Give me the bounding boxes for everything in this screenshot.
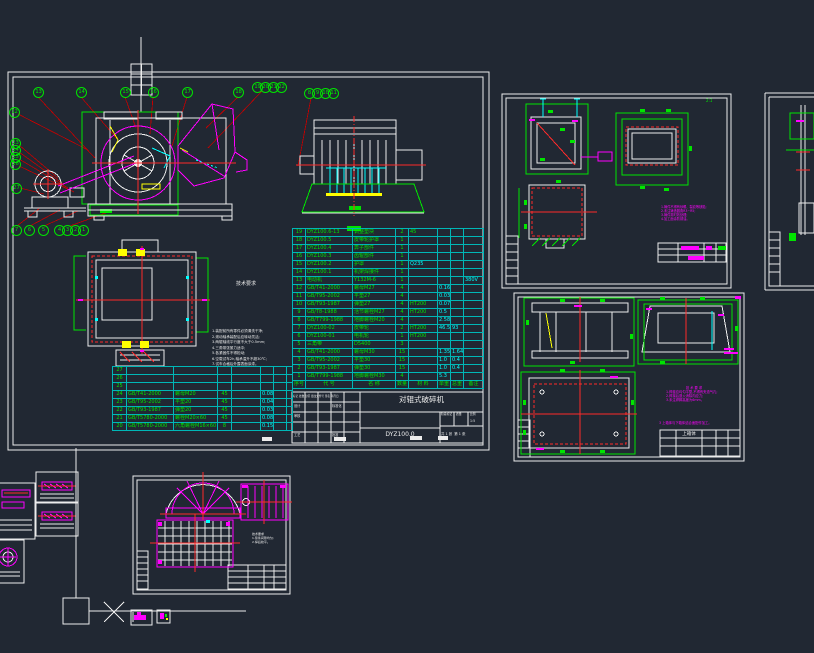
title-block-sheet-count: 共 1 张 第 1 张 [441, 432, 465, 436]
block-preview-icons [131, 610, 170, 625]
sheet-c-notes-lines: 1.焊缝应均匀平整,不得有夹渣气孔;2.焊接后退火消除内应力;3.未注焊脚高度为… [666, 390, 722, 402]
crusher-front-view [24, 104, 247, 220]
balloon-22: 22 [276, 82, 287, 93]
balloon-15: 15 [120, 87, 131, 98]
balloon-18: 18 [233, 87, 244, 98]
title-block-approve-label: 批准 [332, 433, 338, 437]
balloon-17: 17 [182, 87, 193, 98]
title-block-scale-value: 1:5 [470, 419, 475, 423]
balloon-7: 7 [11, 225, 22, 236]
title-block-process-label: 工艺 [294, 433, 300, 437]
sheet-c-title-block-title: 上箱体 [677, 432, 701, 438]
technical-notes-title: 技术要求 [212, 281, 280, 287]
technical-notes: 技术要求 1.装配前所有零件必须清洗干净;2.滚动轴承装配后应转动灵活;3.两辊… [212, 241, 280, 388]
balloon-27: 27 [11, 183, 22, 194]
crusher-plan-view [74, 240, 210, 366]
sheet-c-notes: 技 术 要 求 1.焊缝应均匀平整,不得有夹渣气孔;2.焊接后退火消除内应力;3… [666, 386, 722, 402]
sheet-d-notes: 技术要求1.筛条间隙均匀;2.焊后校平。 [252, 533, 284, 544]
title-block-rev-header: 标记 处数 分区 更改文件号 签名 年月日 [293, 395, 359, 398]
sheet-c-extra-note: 3 上箱体与下箱体结合面配作加工。 [659, 421, 719, 425]
title-block-std-label: 标准化 [332, 404, 342, 408]
balloon-12: 12 [9, 107, 20, 118]
balloon-leader-lines [17, 91, 311, 226]
balloon-14: 14 [76, 87, 87, 98]
sheet-b-corner-mark: 2:1 [706, 98, 712, 103]
title-block-title: 对辊式破碎机 [360, 395, 483, 404]
small-part-sheets [0, 472, 78, 583]
title-block-check-label: 审核 [294, 414, 300, 418]
balloon-5: 5 [38, 225, 49, 236]
technical-notes-lines: 1.装配前所有零件必须清洗干净;2.滚动轴承装配后应转动灵活;3.两辊轴线平行度… [212, 329, 280, 366]
title-block-scale-label: 比例 [470, 413, 476, 416]
sheet-far-right-partial [765, 93, 814, 290]
title-block-design-label: 设计 [294, 404, 300, 408]
autocad-model-space[interactable]: 19DYZ100.6-13调整垫块24518DYZ100.5皮带轮护罩117DY… [0, 0, 814, 653]
sheet-bottom-right [514, 293, 744, 461]
balloon-1: 1 [78, 225, 89, 236]
bom-table-main: 19DYZ100.6-13调整垫块24518DYZ100.5皮带轮护罩117DY… [292, 228, 484, 389]
sheet-top-right [502, 94, 731, 288]
balloon-13: 13 [33, 87, 44, 98]
sheet-b-notes: 1.铸件不得有砂眼、裂纹等缺陷;2.未注铸造圆角R3~R5;3.铸件需时效处理;… [661, 205, 713, 221]
point-x-marker [104, 602, 124, 622]
balloon-16: 16 [148, 87, 159, 98]
balloon-26: 26 [10, 159, 21, 170]
balloon-11: 11 [328, 88, 339, 99]
title-block-stage-label: 阶段标记 [441, 413, 452, 416]
crusher-side-view [296, 116, 426, 231]
title-block-mass-label: 质量 [456, 413, 462, 416]
title-block-drawing-no: DYZ100.0 [360, 431, 440, 439]
balloon-6: 6 [24, 225, 35, 236]
